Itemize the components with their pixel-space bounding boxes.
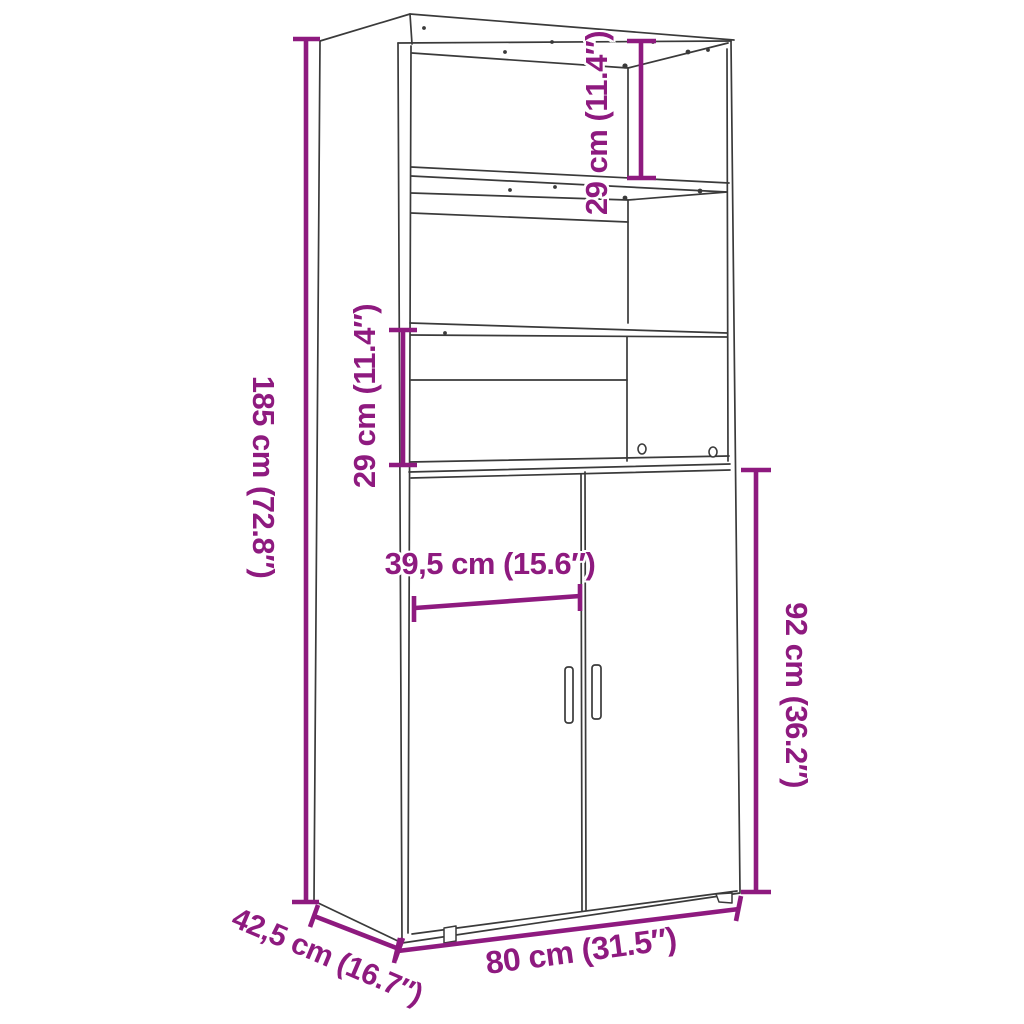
- cabinet-shelves: [409, 43, 730, 472]
- diagram-canvas: 185 cm (72.8″) 29 cm (11.4″) 29 cm (11.4…: [0, 0, 1024, 1024]
- cabinet-foot-left: [444, 926, 456, 943]
- cabinet-holes: [422, 26, 717, 457]
- cabinet-doors: [411, 470, 732, 943]
- dim-line-door-width: [414, 584, 580, 622]
- cabinet-line-drawing: [0, 0, 1024, 1024]
- dimension-lines: [292, 39, 771, 963]
- dimension-label-middle-compartment: 29 cm (11.4″): [347, 304, 383, 488]
- dimension-label-door-height: 92 cm (36.2″): [778, 602, 814, 788]
- dimension-label-door-width: 39,5 cm (15.6″): [385, 546, 596, 582]
- dimension-label-top-compartment: 29 cm (11.4″): [579, 31, 615, 215]
- dim-line-door-height: [741, 470, 771, 892]
- door-handle-left: [565, 667, 573, 723]
- dim-line-middle-compartment: [389, 330, 417, 465]
- dimension-label-total-height: 185 cm (72.8″): [245, 376, 281, 579]
- cabinet-foot-right: [716, 893, 732, 903]
- dim-line-total-height: [292, 39, 320, 902]
- door-handle-right: [592, 665, 601, 719]
